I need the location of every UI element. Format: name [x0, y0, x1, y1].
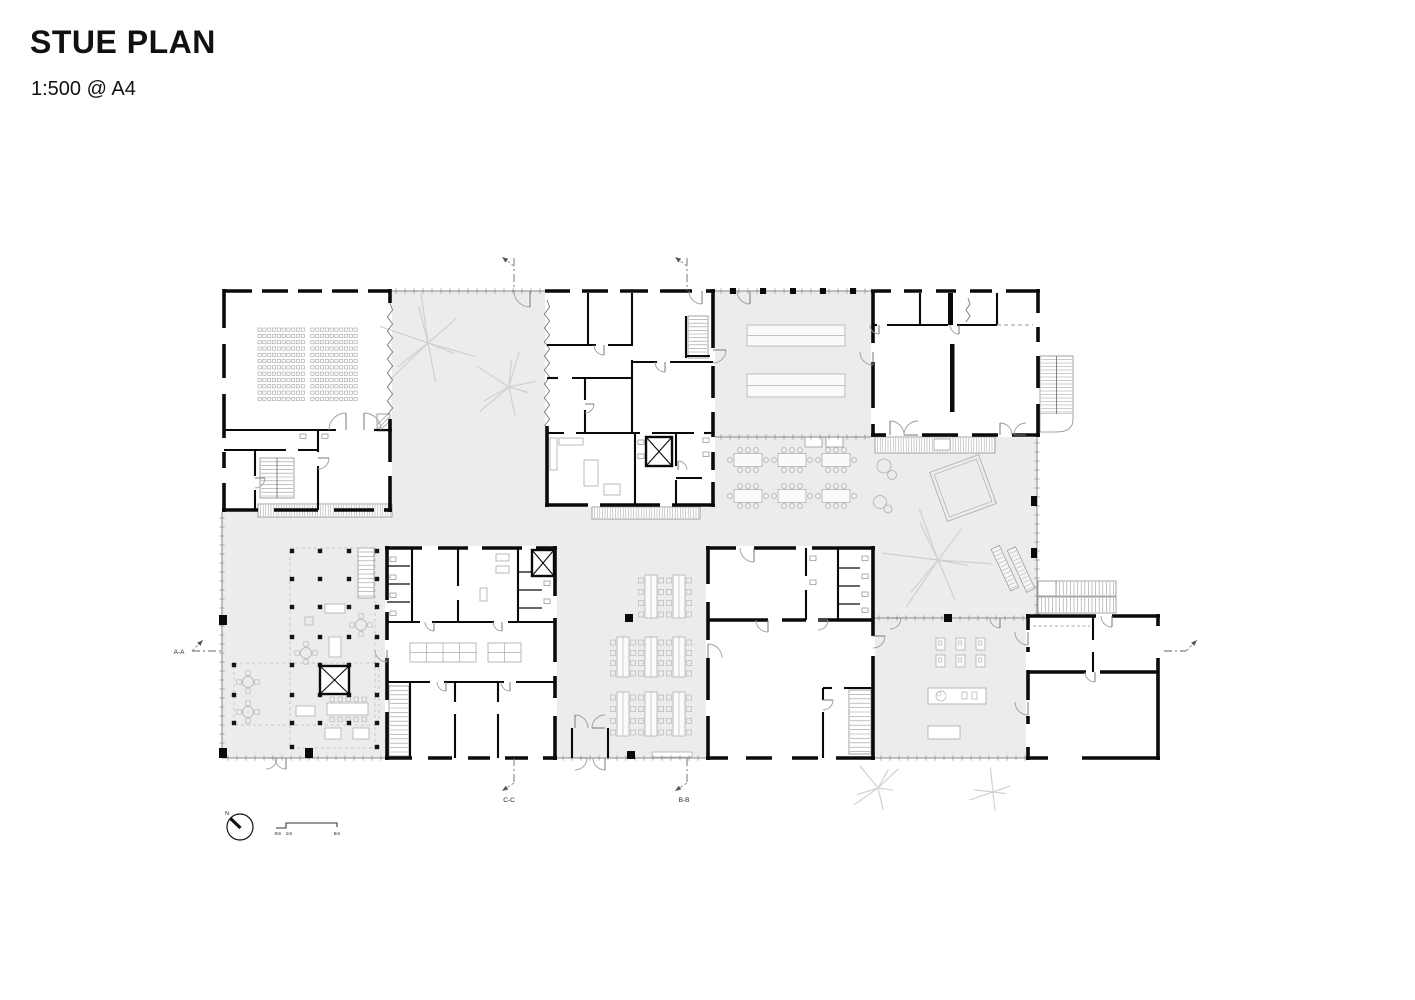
floor-plan: A-A C-C B-B N 0m 1m 5m	[0, 0, 1415, 1000]
scale-bar-label-5m: 5m	[334, 831, 341, 837]
section-label-bb: B-B	[679, 797, 690, 804]
scale-bar-label-0m: 0m	[275, 831, 282, 837]
section-label-aa: A-A	[174, 649, 186, 656]
scale-bar-label-1m: 1m	[286, 831, 293, 837]
drawing-sheet: STUE PLAN 1:500 @ A4 A-A C-C B-B N 0m 1m…	[0, 0, 1415, 1000]
scale-bar	[276, 823, 337, 828]
north-arrow-icon	[227, 814, 253, 840]
north-label: N	[225, 811, 229, 817]
section-label-cc: C-C	[503, 797, 515, 804]
